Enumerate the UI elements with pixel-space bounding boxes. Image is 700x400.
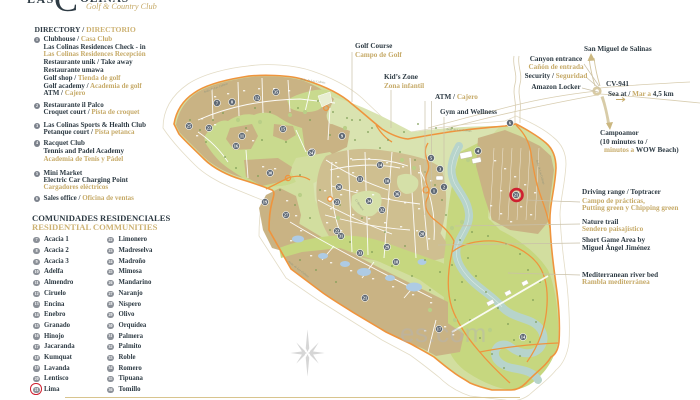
svg-text:32: 32 xyxy=(380,207,384,212)
svg-text:1: 1 xyxy=(433,188,435,193)
svg-text:12: 12 xyxy=(255,95,259,100)
svg-text:2: 2 xyxy=(443,184,445,189)
svg-text:21: 21 xyxy=(514,192,518,197)
svg-text:11: 11 xyxy=(240,133,244,138)
svg-text:31: 31 xyxy=(339,233,343,238)
svg-text:es.com: es.com xyxy=(400,318,487,348)
svg-text:21: 21 xyxy=(363,295,367,300)
svg-text:22: 22 xyxy=(207,125,211,130)
